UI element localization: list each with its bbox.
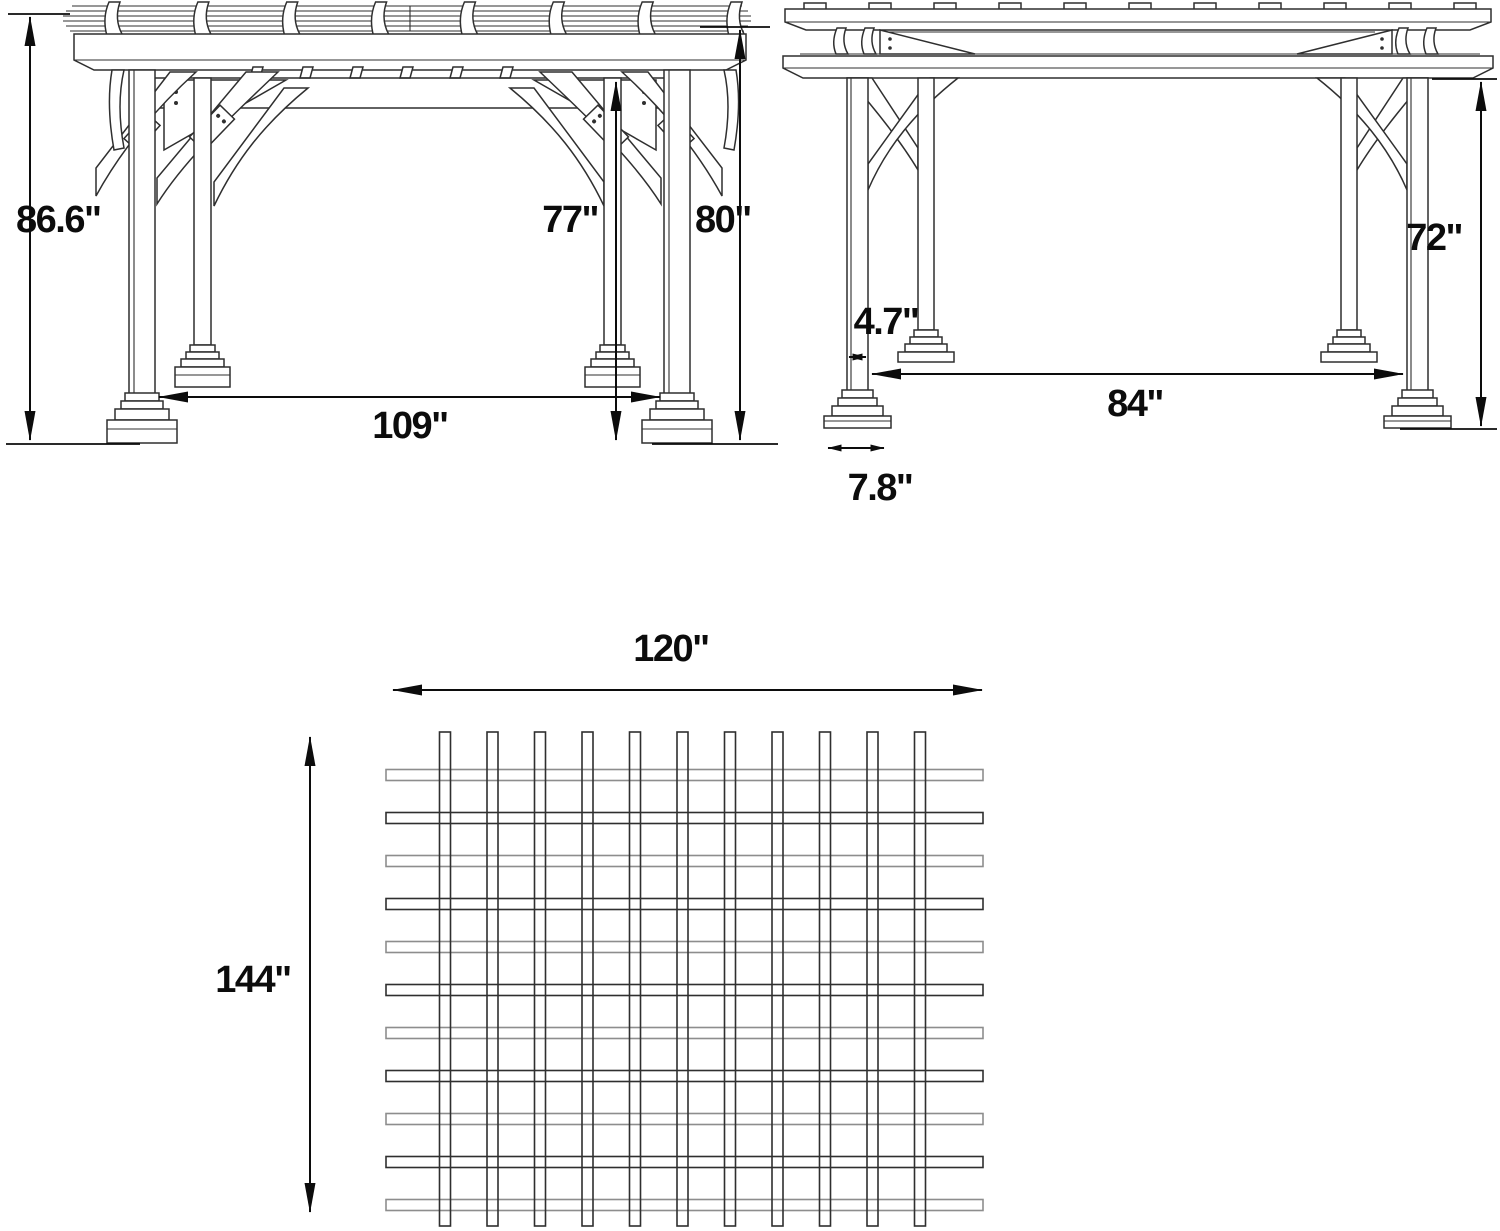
lattice-slat-horizontal: [386, 1157, 983, 1168]
lattice-slat-horizontal: [386, 1028, 983, 1039]
purlin-tab: [350, 67, 363, 78]
side-lower-beam: [783, 56, 1493, 78]
side-gusset-right: [1297, 30, 1392, 54]
side-knee-braces: [848, 78, 1427, 190]
rafter-tail: [727, 2, 744, 36]
front-posts: [107, 70, 712, 443]
dim-plan-width: 120": [393, 628, 982, 690]
dim-front-post-spacing: 109": [159, 397, 660, 447]
side-tail: [1396, 28, 1410, 54]
lattice-slat-horizontal: [386, 856, 983, 867]
side-tail: [834, 28, 848, 54]
dim-label-roof-width: 120": [633, 628, 708, 670]
side-view: 72" 4.7" 84" 7.8": [783, 3, 1497, 509]
dim-side-post-spacing: 84": [872, 374, 1403, 425]
front-roof-lattice-edge: [63, 2, 751, 36]
lattice-slat-horizontal: [386, 899, 983, 910]
dim-label-overall-height: 86.6": [16, 199, 100, 241]
lattice-slat-vertical: [487, 732, 498, 1226]
rafter-tail: [283, 2, 300, 36]
side-posts: [824, 78, 1451, 428]
lattice-slat-vertical: [677, 732, 688, 1226]
post-side-front-left: [847, 78, 868, 392]
dim-label-post-spacing-side: 84": [1107, 383, 1163, 425]
drawing-canvas: 86.6" 77" 80" 109": [0, 0, 1500, 1231]
side-gusset-left: [880, 30, 975, 54]
lattice-slat-vertical: [725, 732, 736, 1226]
end-tail-right: [724, 70, 739, 150]
rafter-tail: [371, 2, 388, 36]
rafter-tail: [105, 2, 122, 36]
dim-side-base-width: 7.8": [828, 448, 912, 509]
rafter-tail: [194, 2, 211, 36]
end-tail-left: [109, 70, 124, 150]
dim-label-frame-height: 80": [695, 199, 751, 241]
plan-view: 120" 144": [215, 628, 983, 1226]
dim-label-post-height: 72": [1406, 217, 1462, 259]
lattice-slat-vertical: [582, 732, 593, 1226]
purlin-tab: [300, 67, 313, 78]
dim-plan-depth: 144": [215, 737, 310, 1212]
dim-label-post-spacing-front: 109": [372, 405, 447, 447]
dim-label-post-width: 4.7": [854, 301, 919, 343]
side-tail: [862, 28, 876, 54]
lattice-slat-vertical: [867, 732, 878, 1226]
lattice-slat-horizontal: [386, 1071, 983, 1082]
lattice-slat-horizontal: [386, 1114, 983, 1125]
lattice-slat-vertical: [820, 732, 831, 1226]
lattice-slat-vertical: [440, 732, 451, 1226]
lattice-slat-vertical: [630, 732, 641, 1226]
dim-label-roof-depth: 144": [215, 959, 290, 1001]
post-front-right: [664, 70, 690, 395]
dim-label-base-width: 7.8": [848, 467, 913, 509]
purlin-tab: [450, 67, 463, 78]
post-back-right: [604, 78, 621, 345]
lattice-slat-horizontal: [386, 770, 983, 781]
side-tail: [1424, 28, 1438, 54]
post-back-left: [194, 78, 211, 345]
purlin-tab: [500, 67, 513, 78]
front-header-beam: [74, 34, 746, 70]
rafter-tail: [460, 2, 477, 36]
front-view: 86.6" 77" 80" 109": [6, 2, 778, 447]
side-top-beam: [785, 9, 1491, 30]
lattice-slat-horizontal: [386, 985, 983, 996]
post-front-left: [129, 70, 155, 395]
post-side-back-right: [1341, 78, 1357, 330]
post-base-back-left: [175, 345, 230, 387]
lattice-slat-horizontal: [386, 813, 983, 824]
pergola-dimension-drawing: 86.6" 77" 80" 109": [0, 0, 1500, 1231]
purlin-tab: [400, 67, 413, 78]
rafter-tail: [549, 2, 566, 36]
post-base-front-left: [107, 393, 177, 443]
lattice-slat-horizontal: [386, 942, 983, 953]
base-side-front-left: [824, 390, 891, 428]
roof-lattice-grid: [386, 732, 983, 1226]
base-side-front-right: [1384, 390, 1451, 428]
post-base-front-right: [642, 393, 712, 443]
lattice-slat-vertical: [772, 732, 783, 1226]
lattice-slat-vertical: [535, 732, 546, 1226]
rafter-tail: [638, 2, 655, 36]
side-girder: [800, 28, 1480, 54]
base-side-back-right: [1321, 330, 1377, 362]
lattice-slat-vertical: [915, 732, 926, 1226]
lattice-slat-horizontal: [386, 1200, 983, 1211]
post-side-back-left: [918, 78, 934, 330]
post-base-back-right: [585, 345, 640, 387]
dim-label-clearance-height: 77": [542, 199, 598, 241]
